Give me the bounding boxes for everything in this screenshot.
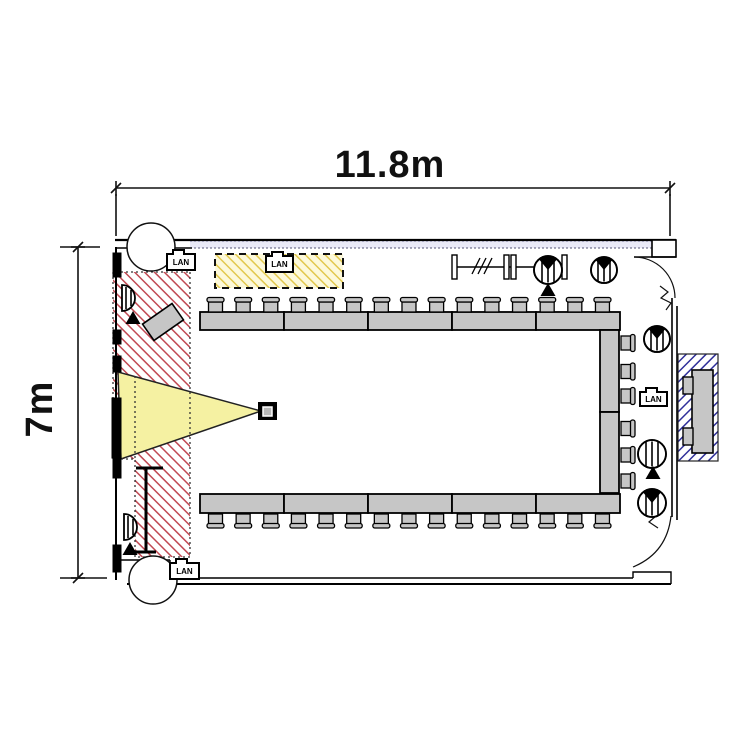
outside-console-area [678,354,718,461]
chair [236,514,250,524]
lan-port-label: LAN [265,255,294,273]
chair-back [631,363,636,380]
chair [264,514,278,524]
width-dimension-label: 11.8m [290,146,490,184]
chair-back [290,524,307,529]
chair-back [566,298,583,303]
floor-plan-page: 11.8m 7m LAN LAN LAN LAN [0,0,750,750]
chair [430,514,444,524]
ceiling-speaker-icon [638,440,666,468]
chair-back [235,298,252,303]
chair-back [483,524,500,529]
chair [540,302,554,312]
chair [621,448,631,462]
table-segment-bottom [368,494,452,513]
chair-back [511,524,528,529]
chair [540,514,554,524]
chair [209,302,223,312]
chair [402,514,416,524]
lan-port-label: LAN [166,253,196,271]
chair-back [345,524,362,529]
chair [430,302,444,312]
table-segment-right [600,330,619,412]
chair [457,302,471,312]
chair-back [594,298,611,303]
table-segment-bottom [536,494,620,513]
chair [236,302,250,312]
chair-back [631,447,636,464]
table-segment-right [600,412,619,493]
wall-screen [112,398,121,458]
chair-back [539,524,556,529]
chair [264,302,278,312]
chair-back [483,298,500,303]
chair-back [207,524,224,529]
chair-back [631,388,636,405]
table-segment-top [200,312,284,330]
chair [513,302,527,312]
chair-back [373,298,390,303]
height-dimension-label: 7m [21,377,59,441]
lan-port-label: LAN [639,391,668,407]
chair-back [428,298,445,303]
projector [258,402,277,420]
chair [595,514,609,524]
floor-plan-drawing [0,0,750,750]
chair-back [207,298,224,303]
chair [374,302,388,312]
chair-back [539,298,556,303]
chair [319,514,333,524]
table-segment-bottom [200,494,284,513]
lan-port-label: LAN [169,562,200,580]
chair-back [235,524,252,529]
chair [209,514,223,524]
chair [568,514,582,524]
chair [621,474,631,488]
chair [485,302,499,312]
chair-back [631,473,636,490]
ceiling-speaker-icon [638,489,666,517]
chair-back [456,298,473,303]
outside-chair [683,377,693,394]
outside-table [692,370,713,453]
chair [621,336,631,350]
chair-back [631,420,636,437]
chair-back [318,524,335,529]
outside-chair [683,428,693,445]
chair-back [456,524,473,529]
chair [319,302,333,312]
chair [402,302,416,312]
door-swings [633,257,675,567]
door-top-right [634,257,675,298]
chair [347,514,361,524]
chair-back [290,298,307,303]
table-segment-bottom [284,494,368,513]
chair [374,514,388,524]
chair [621,365,631,379]
chair-back [400,298,417,303]
chair-back [594,524,611,529]
chair [568,302,582,312]
chair-back [566,524,583,529]
ceiling-speaker-icon [644,326,670,352]
chair-back [373,524,390,529]
chair [595,302,609,312]
floor-mic-triangle [541,283,556,296]
chair [347,302,361,312]
table-segment-top [536,312,620,330]
chair [621,389,631,403]
window-band [190,241,652,248]
chair [291,302,305,312]
chair-back [511,298,528,303]
chair-back [262,524,279,529]
chair [457,514,471,524]
ceiling-speaker-icon [591,257,617,283]
table-segment-top [284,312,368,330]
chair-back [318,298,335,303]
table-segment-top [368,312,452,330]
chair-back [400,524,417,529]
table-segment-top [452,312,536,330]
chair [621,422,631,436]
ceiling-speaker-icon [534,256,562,284]
chair-back [631,335,636,352]
chair [485,514,499,524]
chair-back [262,298,279,303]
chair-back [345,298,362,303]
chair [291,514,305,524]
chair [513,514,527,524]
table-segment-bottom [452,494,536,513]
door-top-right-break [660,286,671,310]
chair-back [428,524,445,529]
